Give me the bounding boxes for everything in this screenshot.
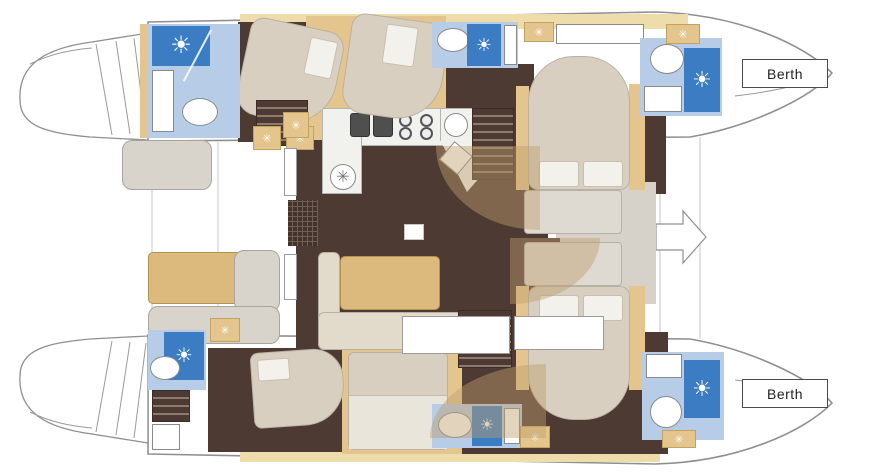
sink [644, 86, 682, 112]
deck-hatch-icon: ✳ [210, 318, 240, 342]
hatch-glyph: ✳ [220, 324, 229, 337]
galley-fan-icon: ✳ [330, 164, 356, 190]
mast-arrow [656, 211, 706, 263]
cockpit-seat [234, 250, 280, 312]
salon-door-panel [514, 316, 604, 350]
deck-hatch-icon: ✳ [524, 22, 554, 42]
pillow [539, 161, 579, 187]
port-mid-bathroom: ☀ [432, 22, 518, 68]
toilet [150, 356, 180, 380]
deck-hatch-icon: ✳ [666, 24, 700, 44]
toilet [650, 396, 682, 428]
toilet [650, 44, 684, 74]
shower: ☀ [684, 48, 720, 112]
stove-burner-icon [420, 127, 433, 140]
berth-label-text: Berth [767, 66, 803, 82]
starboard-fore-island-bed [528, 56, 630, 190]
hatch-glyph: ✳ [291, 119, 300, 132]
fan-glyph: ✳ [336, 167, 349, 187]
berth-label-port: Berth [742, 59, 828, 88]
galley-sink-basin [350, 113, 370, 137]
bathroom-wall [140, 24, 148, 138]
deck-hatch-icon: ✳ [662, 430, 696, 448]
stove-burner-icon [399, 127, 412, 140]
bathroom-door [504, 25, 517, 65]
headboard-cabinet [556, 24, 644, 44]
shower-sun-icon: ☀ [476, 36, 492, 54]
hatch-glyph: ✳ [678, 28, 687, 41]
berth-label-text: Berth [767, 386, 803, 402]
cockpit-seat [122, 140, 212, 190]
shower: ☀ [684, 360, 720, 418]
shower-sun-icon: ☀ [170, 34, 192, 58]
round-sink-icon [444, 113, 468, 137]
shower-column [152, 70, 174, 132]
pillow [583, 161, 623, 187]
pillow [303, 37, 338, 80]
deck-hatch-icon: ✳ [253, 126, 281, 150]
berth-label-starboard: Berth [742, 379, 828, 408]
toilet [182, 98, 218, 126]
cabinet [152, 424, 180, 450]
shower-sun-icon: ☀ [692, 69, 712, 91]
hull-window [284, 254, 297, 300]
entry-grate [288, 200, 318, 246]
companionway-stairs [152, 390, 190, 422]
toilet [437, 28, 469, 52]
salon-table [340, 256, 440, 310]
shower-sun-icon: ☀ [692, 378, 712, 400]
hatch-glyph: ✳ [534, 26, 543, 39]
cockpit-table [148, 252, 246, 304]
salon-door-panel [402, 316, 510, 354]
stove-burner-icon [420, 114, 433, 127]
port-aft-bathroom: ☀ [148, 24, 240, 138]
hatch-glyph: ✳ [674, 433, 683, 446]
deck-hatch-icon: ✳ [283, 112, 309, 138]
pillow [382, 23, 419, 67]
hatch-glyph: ✳ [262, 132, 271, 145]
table-base [404, 224, 424, 240]
starboard-fore-bathroom: ☀ [640, 38, 722, 116]
port-aft-lower-bathroom: ☀ [148, 330, 206, 390]
starboard-aft-bathroom: ☀ [642, 352, 724, 440]
shower: ☀ [467, 24, 501, 66]
catamaran-floorplan: ✳ ☀ ☀ ☀ [0, 0, 883, 476]
pillow [257, 358, 290, 382]
hull-window [284, 148, 297, 196]
sink [646, 354, 682, 378]
